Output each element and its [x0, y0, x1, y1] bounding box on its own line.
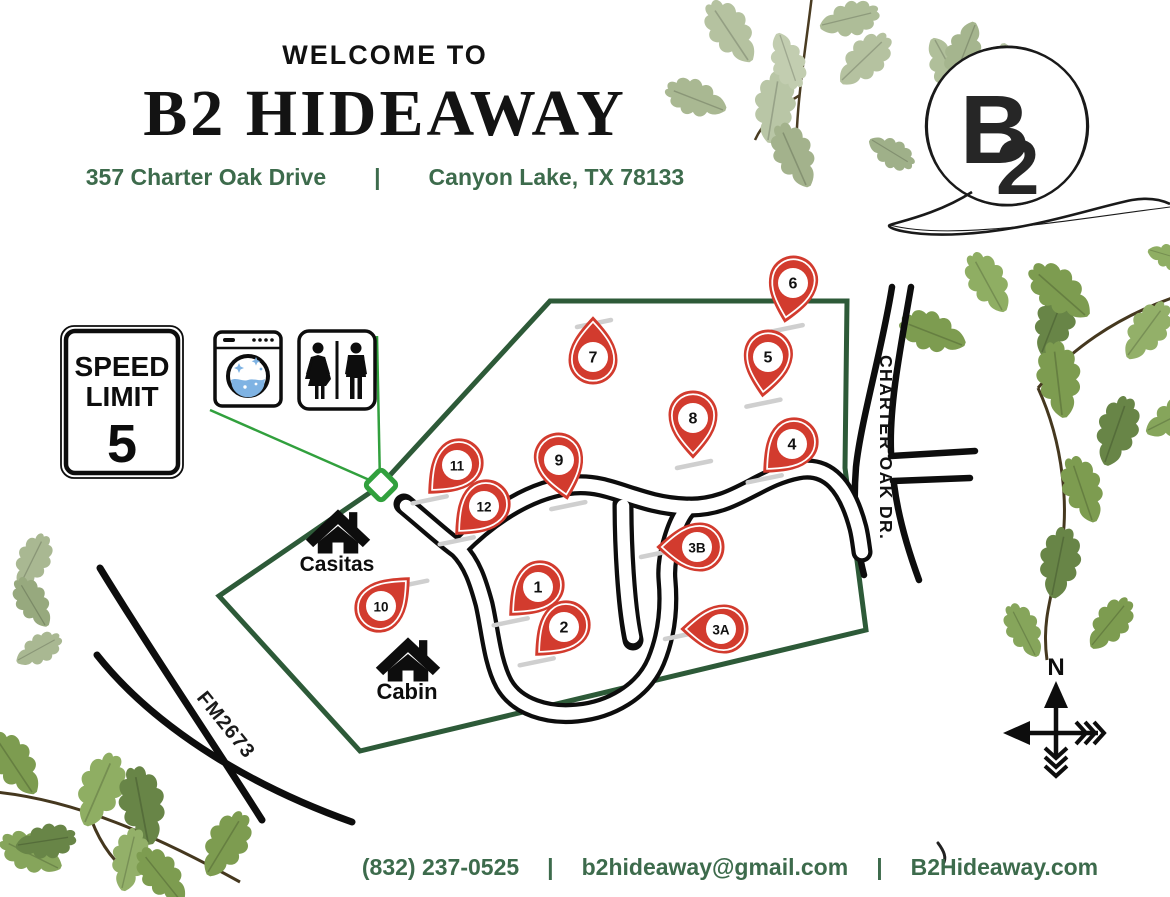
- footer-email: b2hideaway@gmail.com: [582, 854, 849, 881]
- pin-shadow-1: [494, 618, 528, 625]
- pin-label: 10: [373, 600, 388, 615]
- site-pin-3A: 3A: [681, 605, 748, 653]
- pin-label: 7: [589, 350, 598, 367]
- footer-separator-1: |: [547, 854, 553, 881]
- footer: (832) 237-0525 | b2hideaway@gmail.com | …: [290, 854, 1170, 881]
- pin-label: 6: [789, 276, 798, 293]
- footer-phone: (832) 237-0525: [362, 854, 519, 881]
- pin-label: 5: [764, 350, 773, 367]
- compass-n-label: N: [1047, 654, 1064, 681]
- site-pin-5: 5: [739, 327, 796, 400]
- pin-shadow-11: [413, 496, 447, 503]
- pin-shadow-8: [677, 461, 711, 468]
- road-label-charter-oak: CHARTER OAK DR.: [876, 355, 896, 540]
- cabin-label: Cabin: [376, 679, 437, 704]
- pin-label: 2: [560, 620, 569, 637]
- pin-label: 11: [450, 459, 465, 474]
- site-pin-8: 8: [669, 391, 717, 458]
- speed-limit-sign: SPEED LIMIT 5: [61, 326, 183, 478]
- cabin-house-icon: [376, 637, 440, 681]
- speed-sign-line3: 5: [107, 414, 137, 474]
- pin-shadow-5: [746, 400, 780, 407]
- pin-shadow-9: [551, 502, 585, 509]
- pin-label: 9: [555, 453, 564, 470]
- site-pin-6: 6: [761, 252, 822, 328]
- pin-label: 1: [534, 580, 543, 597]
- b2-hideaway-map-flyer: WELCOME TO B2 HIDEAWAY 357 Charter Oak D…: [0, 0, 1170, 897]
- laundry-washer-icon: [215, 332, 281, 406]
- speed-sign-line2: LIMIT: [85, 381, 158, 412]
- footer-website: B2Hideaway.com: [911, 854, 1098, 881]
- pin-label: 12: [476, 500, 491, 515]
- casitas-label: Casitas: [300, 553, 375, 576]
- pin-label: 3B: [688, 541, 706, 556]
- footer-separator-2: |: [876, 854, 882, 881]
- oak-leaves-top-center: [660, 0, 920, 195]
- logo-monogram-2: 2: [996, 123, 1039, 211]
- site-map: FM2673 CHARTER OAK DR.: [0, 0, 1170, 897]
- compass: [1003, 681, 1104, 776]
- pin-shadow-2: [520, 658, 554, 665]
- pin-label: 8: [689, 411, 698, 428]
- pin-label: 3A: [712, 623, 730, 638]
- pin-label: 4: [788, 437, 797, 454]
- restroom-icon: [299, 331, 375, 409]
- casitas-house-icon: [306, 509, 370, 553]
- speed-sign-line1: SPEED: [75, 351, 170, 382]
